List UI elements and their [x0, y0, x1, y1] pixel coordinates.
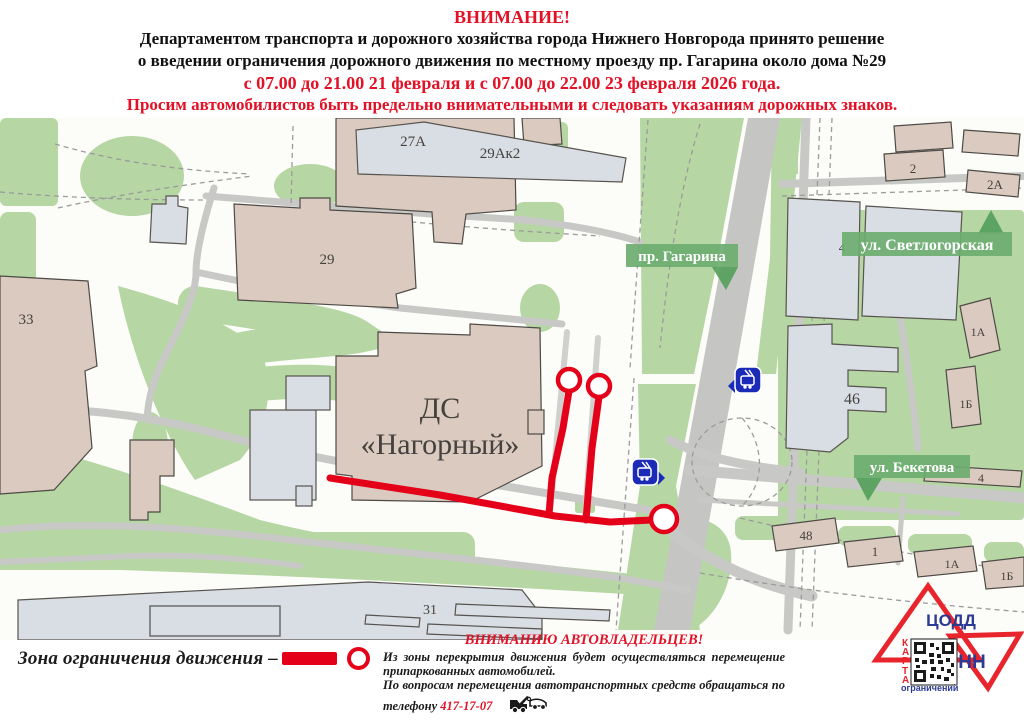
label-31: 31: [423, 603, 437, 618]
header-line-3: о введении ограничения дорожного движени…: [0, 50, 1024, 72]
logo-restrictions-text: ограничений: [901, 683, 965, 693]
restriction-endpoint-circle: [558, 369, 580, 391]
label-1: 1: [872, 544, 879, 559]
label-29ak2: 29Ак2: [480, 146, 521, 162]
label-27a: 27А: [400, 134, 426, 150]
venue-name-line2: «Нагорный»: [361, 428, 520, 461]
label-46: 46: [844, 391, 860, 408]
legend: Зона ограничения движения –: [18, 647, 370, 670]
restriction-endpoint-swatch: [347, 647, 370, 670]
label-48: 48: [800, 528, 813, 543]
label-4-beketova: 4: [978, 471, 984, 485]
logo-karta-text: КАРТА: [902, 639, 913, 685]
phone-number: 417-17-07: [440, 699, 492, 713]
header-line-2: Департаментом транспорта и дорожного хоз…: [0, 28, 1024, 50]
restriction-line-swatch: [282, 652, 337, 665]
restriction-endpoint-circle: [588, 375, 610, 397]
notice-paragraph-1: Из зоны перекрытия движения будет осущес…: [383, 651, 785, 678]
venue-name-line1: ДС: [420, 392, 460, 425]
label-1a-bottom: 1А: [945, 557, 960, 571]
legend-label: Зона ограничения движения –: [18, 648, 278, 670]
label-2: 2: [910, 161, 917, 176]
header: ВНИМАНИЕ! Департаментом транспорта и дор…: [0, 0, 1024, 118]
codd-logo: ЦОДД НН КАРТ: [868, 578, 1024, 726]
map-svg: 29Ак2 27А 29 33 31 2 2А 4 46 1А 1Б 4 48 …: [0, 118, 1024, 640]
label-33: 33: [19, 312, 34, 328]
owners-notice: ВНИМАНИЮ АВТОВЛАДЕЛЬЦЕВ! Из зоны перекры…: [383, 632, 785, 719]
logo-codd-text: ЦОДД: [926, 611, 976, 630]
map: 29Ак2 27А 29 33 31 2 2А 4 46 1А 1Б 4 48 …: [0, 118, 1024, 640]
svg-text:ул. Светлогорская: ул. Светлогорская: [861, 237, 994, 254]
label-1b-right: 1Б: [960, 397, 973, 411]
notice-title: ВНИМАНИЮ АВТОВЛАДЕЛЬЦЕВ!: [383, 632, 785, 649]
header-attention: ВНИМАНИЕ!: [0, 0, 1024, 28]
tow-truck-icon: [509, 693, 549, 719]
label-2a: 2А: [987, 177, 1004, 192]
traffic-restriction-poster: ВНИМАНИЕ! Департаментом транспорта и дор…: [0, 0, 1024, 726]
qr-code: [911, 639, 957, 685]
notice-paragraph-2: По вопросам перемещения автотранспортных…: [383, 679, 785, 718]
label-29: 29: [320, 252, 335, 268]
svg-text:ул. Бекетова: ул. Бекетова: [870, 460, 955, 476]
svg-text:пр. Гагарина: пр. Гагарина: [638, 249, 726, 265]
label-1a-right: 1А: [971, 325, 986, 339]
logo-nn-text: НН: [958, 652, 985, 673]
header-warning: Просим автомобилистов быть предельно вни…: [0, 94, 1024, 116]
building-4-svetlogorskaya: [786, 198, 860, 320]
restriction-endpoint-circle: [651, 506, 677, 532]
header-dates: с 07.00 до 21.00 21 февраля и с 07.00 до…: [0, 72, 1024, 94]
